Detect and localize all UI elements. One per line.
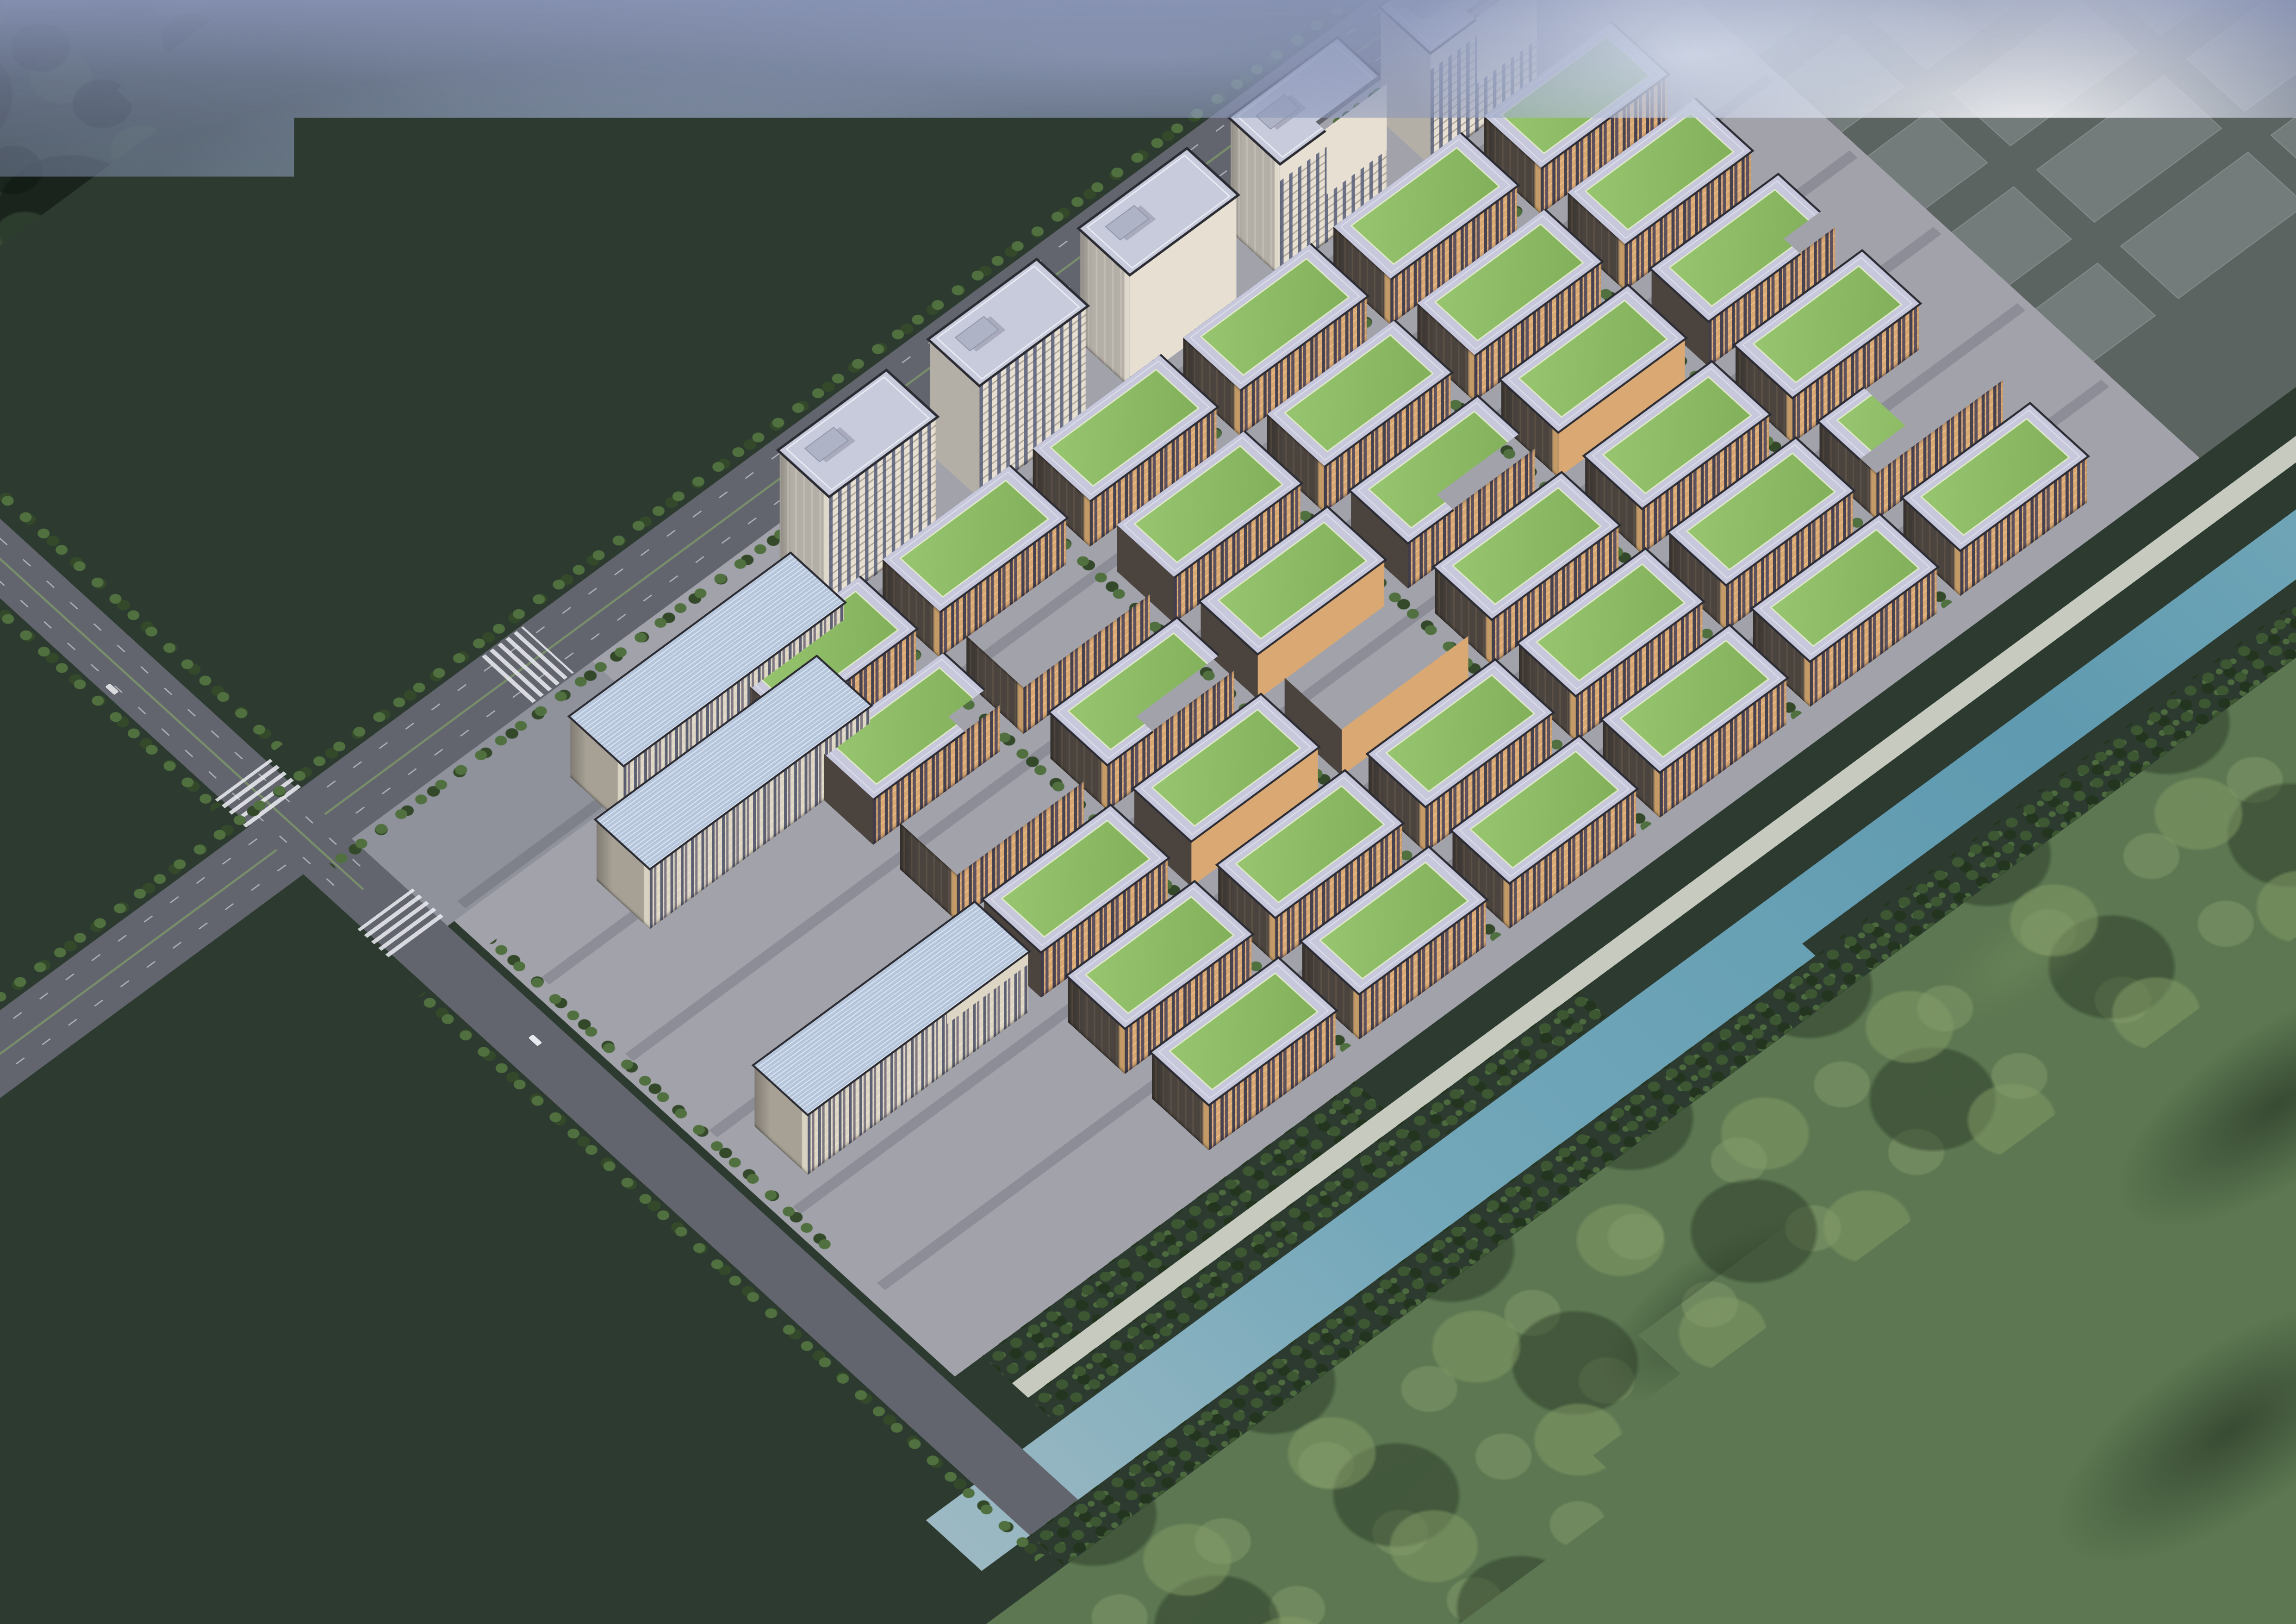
terrain-plane (0, 0, 2296, 1624)
aerial-rendering-scene (0, 0, 2296, 1624)
